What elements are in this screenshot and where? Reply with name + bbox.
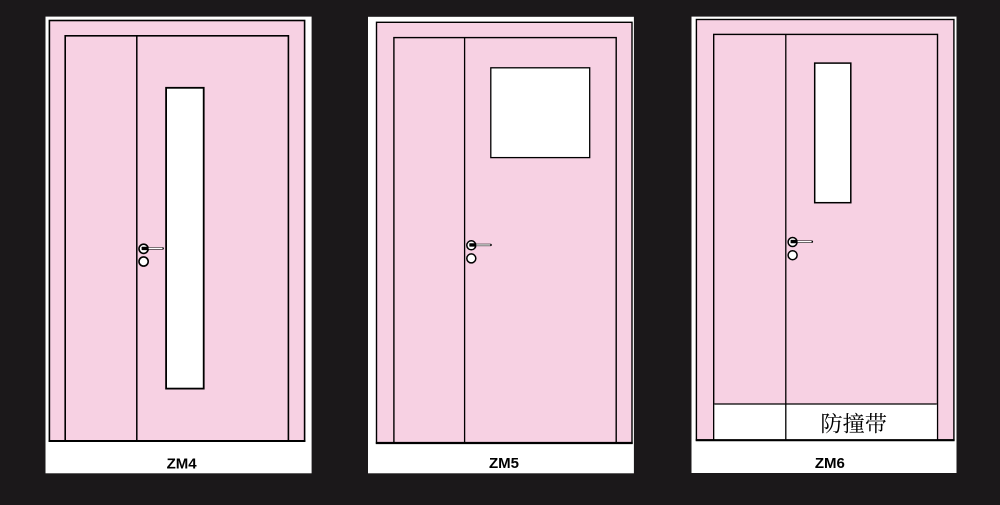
svg-text:ZM4: ZM4 xyxy=(167,455,198,472)
svg-text:ZM5: ZM5 xyxy=(489,455,519,472)
svg-text:ZM6: ZM6 xyxy=(815,455,845,472)
